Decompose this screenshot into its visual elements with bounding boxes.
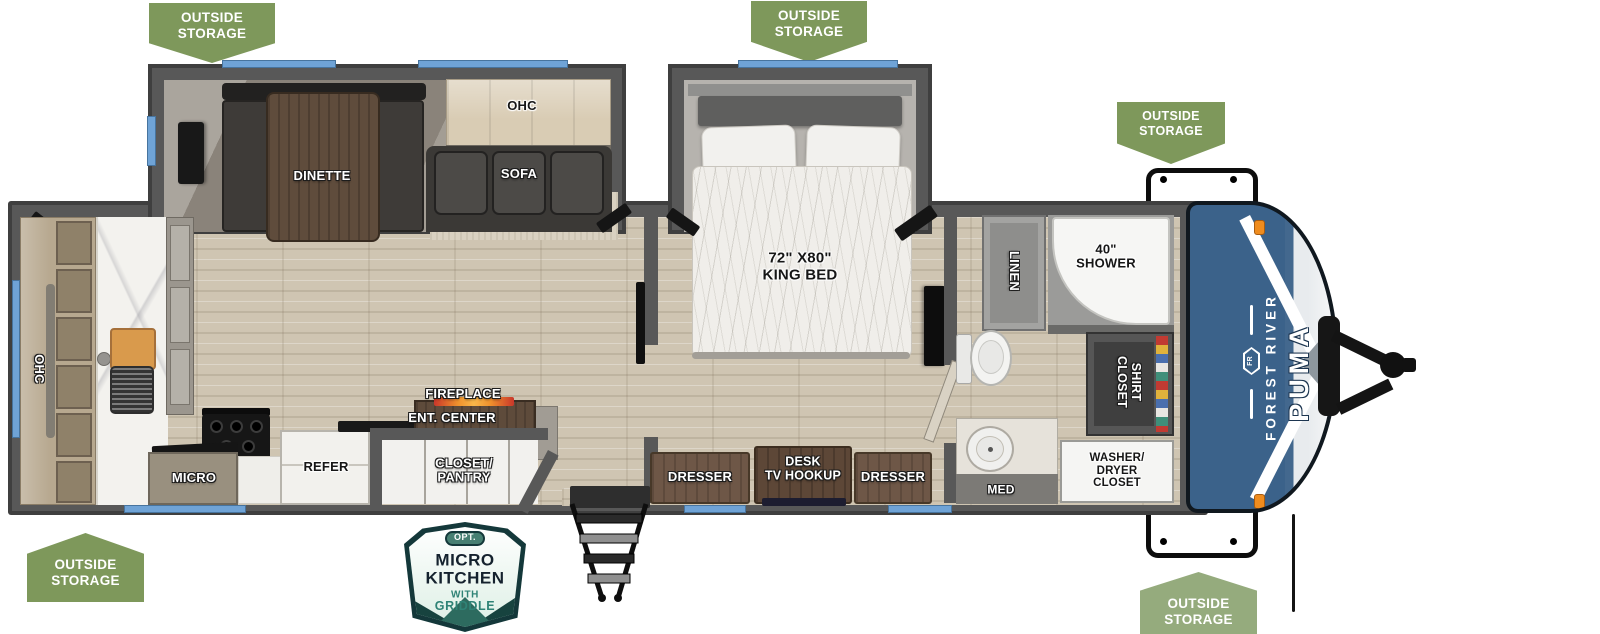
shirt-closet-label: SHIRT CLOSET xyxy=(1114,356,1142,408)
bedroom-wall-upper xyxy=(644,215,658,345)
dinette-bench-left xyxy=(222,100,270,232)
option-badge-line1: MICRO xyxy=(435,552,494,571)
closet-pantry-label: CLOSET/ PANTRY xyxy=(435,457,493,486)
kitchen-cabinet-column-panel-1 xyxy=(170,225,190,281)
sofa-cushion-right xyxy=(550,151,604,215)
micro-label: MICRO xyxy=(172,471,216,485)
rear-cabinet-panel-5 xyxy=(56,413,92,457)
sofa-cushion-middle xyxy=(492,151,546,215)
king-bed-shadow xyxy=(692,352,910,359)
outside-storage-badge-bottom-left: OUTSIDE STORAGE xyxy=(27,533,144,602)
cap-dash-top xyxy=(1250,305,1253,335)
tv-dinette xyxy=(178,122,204,184)
stove-burner-1 xyxy=(210,420,223,433)
floorplan-canvas: OUTSIDE STORAGE OUTSIDE STORAGE OUTSIDE … xyxy=(0,0,1600,634)
emblem-initials: FR xyxy=(1247,356,1255,366)
kitchen-cabinet-column-panel-2 xyxy=(170,287,190,343)
option-badge-line2: KITCHEN xyxy=(425,570,504,589)
rear-wall-window xyxy=(12,280,20,438)
counter-stub xyxy=(238,456,282,504)
rear-cabinet-panel-2 xyxy=(56,269,92,313)
sofa-cushion-left xyxy=(434,151,488,215)
outside-storage-badge-top-right: OUTSIDE STORAGE xyxy=(1117,102,1225,164)
fireplace-label: FIREPLACE xyxy=(425,387,500,401)
refer-label: REFER xyxy=(303,460,348,474)
rear-cabinet-handle-rail xyxy=(46,284,55,438)
tv-bedroom xyxy=(924,286,945,366)
frame-rail-front-bottom-bolt-left xyxy=(1160,538,1167,545)
med-label: MED xyxy=(987,483,1014,496)
cutting-board xyxy=(110,328,156,370)
dresser-right-label: DRESSER xyxy=(861,470,925,484)
cap-clearance-light-top xyxy=(1254,220,1265,235)
dinette-slide-window-top-a xyxy=(222,60,336,68)
desk-tv-label: DESK TV HOOKUP xyxy=(765,455,841,483)
ohc-slide-label: OHC xyxy=(507,99,537,113)
pantry-wall-top xyxy=(370,428,548,440)
front-cap: FR FOREST RIVER PUMA xyxy=(1186,201,1338,513)
stove-burner-5 xyxy=(242,440,255,453)
rear-cabinet-panel-1 xyxy=(56,221,92,265)
rear-cabinet-panel-6 xyxy=(56,461,92,503)
hitch-bar-lower xyxy=(1336,379,1393,415)
frame-rail-front-bottom-bolt-right xyxy=(1230,538,1237,545)
brand-maker-text: FOREST RIVER xyxy=(1265,293,1280,441)
vanity-drain xyxy=(988,447,993,452)
shower-label: 40" SHOWER xyxy=(1076,243,1136,272)
outside-storage-badge-top-middle: OUTSIDE STORAGE xyxy=(751,1,867,62)
desk-tv-strip xyxy=(762,498,846,506)
outside-storage-badge-top-left: OUTSIDE STORAGE xyxy=(149,3,275,63)
entry-steps xyxy=(556,502,660,602)
stove-burner-2 xyxy=(230,420,243,433)
cap-dash-bottom xyxy=(1250,389,1253,419)
outside-storage-badge-bottom-right: OUTSIDE STORAGE xyxy=(1140,572,1257,634)
cap-clearance-light-bottom xyxy=(1254,494,1265,509)
kitchen-faucet xyxy=(97,352,111,366)
dinette-slide-window-left xyxy=(147,116,156,166)
brand-model-text: PUMA xyxy=(1285,322,1315,422)
power-cord xyxy=(1292,514,1295,612)
bed-headboard xyxy=(698,96,902,126)
kitchen-cabinet-column-panel-3 xyxy=(170,349,190,405)
option-badge-opt-label: OPT. xyxy=(454,533,476,543)
dinette-bench-right xyxy=(376,100,424,232)
stove-burner-3 xyxy=(250,420,263,433)
frame-rail-front-top-bolt-right xyxy=(1230,176,1237,183)
option-badge-line4: GRIDDLE xyxy=(435,600,495,614)
ohc-rear-label: OHC xyxy=(32,354,46,384)
window-bottom-kitchen xyxy=(124,505,246,513)
window-bottom-bedroom-left xyxy=(684,505,746,513)
sofa-label: SOFA xyxy=(501,167,537,181)
bed-slide-window-top xyxy=(738,60,898,68)
pantry-wall-left xyxy=(370,428,382,505)
rear-cabinet-panel-4 xyxy=(56,365,92,409)
bed-shelf xyxy=(688,84,912,96)
king-bed-label: 72" X80" KING BED xyxy=(763,251,838,284)
pantry-divider-1 xyxy=(424,440,426,504)
frame-rail-front-top-bolt-left xyxy=(1160,176,1167,183)
shirt-closet-clothes xyxy=(1156,336,1168,432)
forest-river-emblem: FR xyxy=(1243,347,1260,375)
window-bottom-bedroom-right xyxy=(888,505,952,513)
toilet-seat xyxy=(978,340,1004,374)
pantry-divider-3 xyxy=(508,440,510,504)
dresser-left-label: DRESSER xyxy=(668,470,732,484)
ent-center-label: ENT. CENTER xyxy=(408,411,495,425)
hitch-coupler-tip xyxy=(1402,358,1416,372)
linen-label: LINEN xyxy=(1007,251,1021,291)
washer-dryer-label: WASHER/ DRYER CLOSET xyxy=(1089,452,1144,490)
bedroom-pocket-door xyxy=(636,282,645,364)
dinette-label: DINETTE xyxy=(293,169,350,183)
rear-cabinet-panel-3 xyxy=(56,317,92,361)
kitchen-sink xyxy=(110,366,154,414)
dinette-slide-window-top-b xyxy=(418,60,568,68)
